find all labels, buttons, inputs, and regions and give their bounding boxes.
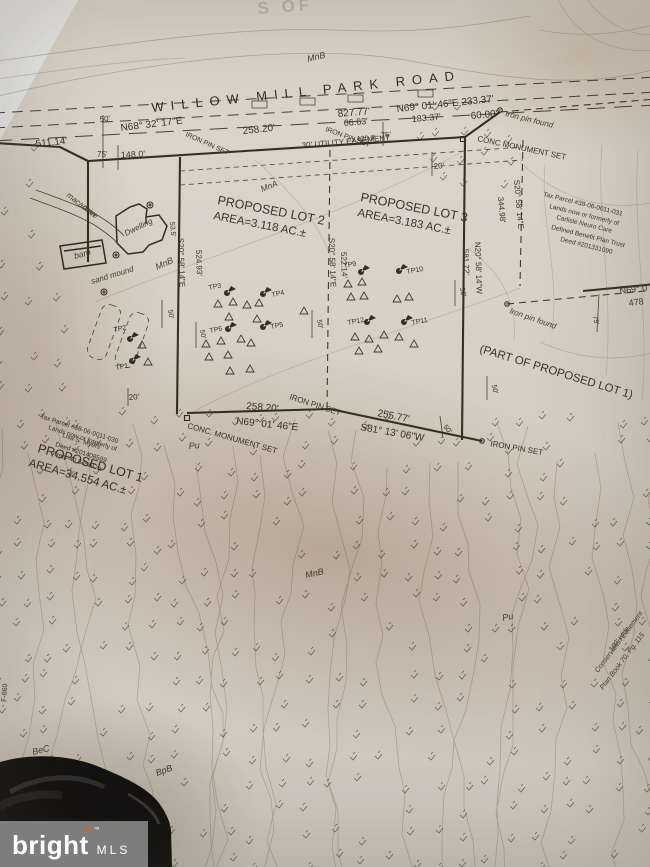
well-symbol — [147, 202, 153, 208]
label-tp11-label: TP11 — [411, 317, 428, 327]
label-conc-monument-top: CONC MONUMENT SET — [477, 134, 568, 162]
label-tp4-label: TP4 — [271, 290, 285, 299]
label-tp6-label: TP6 — [209, 326, 223, 335]
label-dim-75-topleft: 75' — [97, 150, 108, 159]
label-dist-478: 478 — [628, 296, 644, 308]
perc-test-symbol — [217, 337, 225, 344]
mls-text: MLS — [97, 843, 131, 859]
perc-test-symbol — [247, 339, 255, 346]
label-dist-148: 148.0' — [121, 149, 146, 160]
lot-division-dashed-lines — [327, 99, 650, 412]
test-pit-symbol — [358, 265, 370, 275]
label-dist-183: 183.37' — [411, 111, 441, 124]
label-tp5-label: TP5 — [270, 322, 284, 331]
brand-wrap: bright ✦ ™ — [12, 832, 89, 859]
test-pit-symbol — [129, 354, 141, 364]
label-brg-s81: S81° 13' 06"W — [359, 422, 425, 444]
label-brg-s20-mid: S20° 58' 14"E — [327, 238, 338, 288]
label-soil-mnb-top: MnB — [306, 50, 326, 64]
iron-pin-symbol — [479, 438, 485, 444]
label-macadam-drive-line2: drive — [81, 202, 101, 220]
label-dim-75-right: 75' — [591, 315, 599, 325]
label-tp12-label: TP12 — [347, 317, 365, 327]
label-brg-n68: N68° 32' 17"E — [120, 115, 183, 134]
perc-test-symbol — [410, 340, 418, 347]
perc-test-symbol — [355, 347, 363, 354]
perc-test-symbol — [393, 295, 401, 302]
label-dim-50-e: 50' — [490, 384, 498, 394]
perc-test-symbol — [358, 278, 366, 285]
trademark-symbol: ™ — [94, 827, 100, 833]
label-tp2-label: TP2 — [113, 325, 127, 334]
iron-pin-symbol — [497, 107, 503, 113]
label-dim-50-d: 50' — [458, 287, 466, 297]
perc-test-symbol — [144, 358, 152, 365]
photo-corner-glare — [0, 0, 78, 140]
perc-test-symbol — [380, 331, 388, 338]
label-brg-s20-right: S20° 58' 14"E — [512, 179, 525, 229]
perc-test-symbol — [405, 293, 413, 300]
label-brg-s20-left: S20° 58' 14"E — [176, 238, 187, 288]
label-ghost-top-text: S OF — [257, 0, 314, 18]
label-soil-bpb: BpB — [154, 763, 173, 778]
survey-plat-map: WILLOW MILL PARK ROADS OFMnB511.14'50'N6… — [0, 0, 650, 867]
perc-test-symbol — [300, 307, 308, 314]
perc-test-symbol — [205, 353, 213, 360]
label-dim-50-c: 50' — [315, 319, 323, 329]
perc-test-symbol — [243, 301, 251, 308]
label-dwelling-label: Dwelling — [123, 216, 155, 238]
label-dim-75-mid: 75' — [380, 130, 392, 140]
perc-test-symbol — [229, 298, 237, 305]
label-dim-50-a: 50' — [166, 309, 174, 319]
perc-test-symbol — [255, 299, 263, 306]
label-brg-n69-bottom: N69° 01' 46"E — [236, 416, 299, 433]
brightmls-watermark: bright ✦ ™ MLS — [0, 821, 148, 867]
label-brg-n20: N20° 58' 14"W — [473, 242, 484, 295]
perc-test-symbol — [225, 313, 233, 320]
label-soil-mnb-center: MnB — [304, 566, 324, 580]
well-symbol — [101, 289, 107, 295]
star-icon: ✦ — [82, 824, 92, 838]
perc-test-symbol — [395, 333, 403, 340]
perc-test-symbol — [246, 365, 254, 372]
label-sand-mound-label: sand mound — [90, 264, 135, 286]
label-iron-pin-found-right: Iron pin found — [508, 306, 558, 331]
iron-pin-symbol — [504, 301, 510, 307]
perc-test-symbol — [226, 367, 234, 374]
label-iron-pin-found-top: Iron pin found — [505, 109, 555, 130]
label-soil-pu-left: Pu — [188, 440, 200, 451]
label-soil-mna: MnA — [259, 178, 279, 194]
label-dim-20-right: 20' — [433, 161, 445, 171]
perc-test-symbol — [202, 340, 210, 347]
perc-test-symbol — [344, 280, 352, 287]
test-pit-symbol — [224, 286, 236, 296]
label-iron-pin-set-bottom2: IRON PIN SET — [490, 439, 544, 457]
label-iron-pin-set-bottom: IRON PIN SET — [288, 392, 342, 417]
label-dim-20-bottomleft: 20' — [128, 392, 140, 402]
label-dist-60: 60.00' — [470, 109, 498, 122]
label-dim-50-topleft: 50' — [99, 114, 111, 124]
perc-test-symbol — [214, 300, 222, 307]
test-pit-symbol — [364, 315, 376, 325]
label-tp10-label: TP10 — [406, 266, 424, 276]
label-soil-bec: BeC — [31, 743, 51, 757]
survey-plat-photo: WILLOW MILL PARK ROADS OFMnB511.14'50'N6… — [0, 0, 650, 867]
perc-test-symbol — [347, 293, 355, 300]
brand-text: bright — [12, 830, 89, 860]
perc-test-symbol — [224, 351, 232, 358]
label-dist-258-top: 258.20' — [242, 123, 276, 137]
perc-test-symbol — [374, 345, 382, 352]
label-tp1-label: TP1 — [115, 363, 129, 372]
perc-test-symbol — [360, 292, 368, 299]
label-dist-581: 581.72' — [461, 249, 471, 276]
label-tp3-label: TP3 — [208, 283, 222, 292]
well-symbol — [113, 252, 119, 258]
label-tp9-label: TP9 — [343, 261, 357, 270]
perc-test-symbol — [351, 333, 359, 340]
label-edge-label-left: F-860 — [1, 683, 9, 702]
label-dist-344: 344.98' — [496, 196, 507, 223]
perc-test-symbol — [253, 315, 261, 322]
label-dist-258-bottom: 258.20' — [246, 401, 279, 415]
perc-test-symbol — [237, 335, 245, 342]
perc-test-symbol — [138, 341, 146, 348]
label-dim-50-b: 50' — [198, 329, 206, 339]
test-pit-symbol — [127, 332, 139, 342]
test-pit-symbol — [225, 322, 237, 332]
label-soil-mnb-left: MnB — [154, 255, 175, 272]
label-dim-53: 53.5' — [168, 222, 176, 238]
label-brg-n69-right: N69° 0 — [619, 283, 648, 296]
label-dist-524: 524.93' — [194, 250, 204, 277]
label-part-of-lot1-label: (PART OF PROPOSED LOT 1) — [478, 343, 634, 401]
label-dist-66: 66.63' — [343, 116, 368, 128]
map-labels: WILLOW MILL PARK ROADS OFMnB511.14'50'N6… — [1, 0, 648, 778]
